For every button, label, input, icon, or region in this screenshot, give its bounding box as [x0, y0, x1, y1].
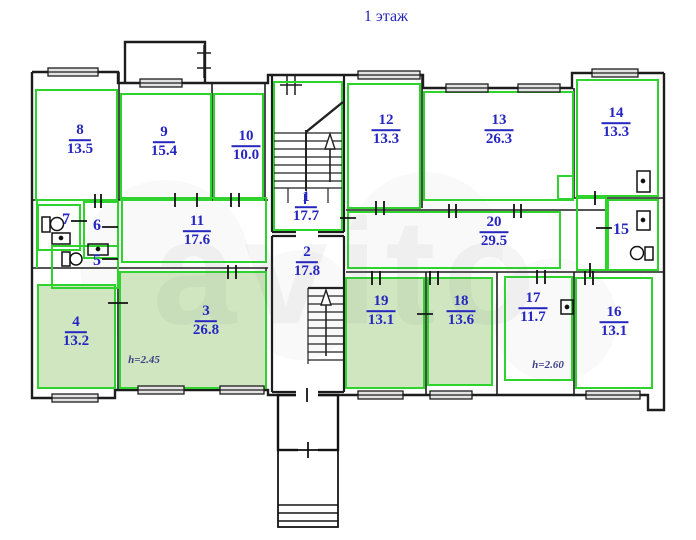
room-19-area: 13.1: [367, 312, 396, 329]
room-14-number: 14: [602, 105, 631, 124]
room-18-area: 13.6: [447, 312, 476, 329]
room-17-number: 17: [519, 290, 548, 309]
room-15-label: 15: [613, 221, 629, 239]
room-8-label: 813.5: [67, 122, 93, 158]
room-3-label: 326.8: [193, 303, 219, 339]
room-12-area: 13.3: [372, 131, 401, 148]
room-18-number: 18: [447, 293, 476, 312]
room-18-label: 1813.6: [447, 293, 476, 329]
room-20-number: 20: [480, 214, 509, 233]
room-12-label: 1213.3: [372, 112, 401, 148]
room-17-height-note: h=2.60: [532, 359, 564, 371]
floor-plan: avito 1 этаж 813.5 915.4 1010.0 117.7 12…: [0, 0, 696, 540]
room-14-label: 1413.3: [602, 105, 631, 141]
room-13-number: 13: [485, 112, 514, 131]
room-4-label: 413.2: [63, 314, 89, 350]
room-7-label: 7: [62, 211, 70, 229]
room-11-area: 17.6: [183, 232, 211, 249]
room-16-number: 16: [600, 304, 629, 323]
room-2-area: 17.8: [294, 263, 320, 280]
room-8-number: 8: [69, 122, 91, 141]
room-1-label: 117.7: [293, 189, 319, 225]
room-9-label: 915.4: [151, 124, 177, 160]
room-10-number: 10: [232, 128, 261, 147]
page-title: 1 этаж: [364, 8, 408, 26]
room-5-label: 5: [93, 252, 101, 270]
room-3-height-note: h=2.45: [128, 354, 160, 366]
room-4-area: 13.2: [63, 333, 89, 350]
room-13-label: 1326.3: [485, 112, 514, 148]
entrance-porch: [278, 388, 338, 527]
room-17-label: 1711.7: [519, 290, 548, 326]
room-19-label: 1913.1: [367, 293, 396, 329]
room-3-number: 3: [195, 303, 217, 322]
floor-plan-drawing: [0, 0, 696, 540]
room-1-number: 1: [295, 189, 317, 208]
room-2-number: 2: [296, 244, 318, 263]
room-2-label: 217.8: [294, 244, 320, 280]
room-20-area: 29.5: [480, 233, 509, 250]
room-4-number: 4: [65, 314, 87, 333]
room-19-number: 19: [367, 293, 396, 312]
room-20-label: 2029.5: [480, 214, 509, 250]
room-1-area: 17.7: [293, 208, 319, 225]
room-12-number: 12: [372, 112, 401, 131]
staircase-upper-icon: [274, 102, 343, 203]
room-14-area: 13.3: [602, 124, 631, 141]
room-9-number: 9: [153, 124, 175, 143]
room-3-area: 26.8: [193, 322, 219, 339]
room-17-area: 11.7: [519, 309, 548, 326]
room-11-number: 11: [183, 213, 211, 232]
room-10-label: 1010.0: [232, 128, 261, 164]
room-9-area: 15.4: [151, 143, 177, 160]
room-11-label: 1117.6: [183, 213, 211, 249]
room-10-area: 10.0: [232, 147, 261, 164]
room-16-label: 1613.1: [600, 304, 629, 340]
room-16-area: 13.1: [600, 323, 629, 340]
room-13-area: 26.3: [485, 131, 514, 148]
room-6-label: 6: [93, 217, 101, 235]
room-8-area: 13.5: [67, 141, 93, 158]
